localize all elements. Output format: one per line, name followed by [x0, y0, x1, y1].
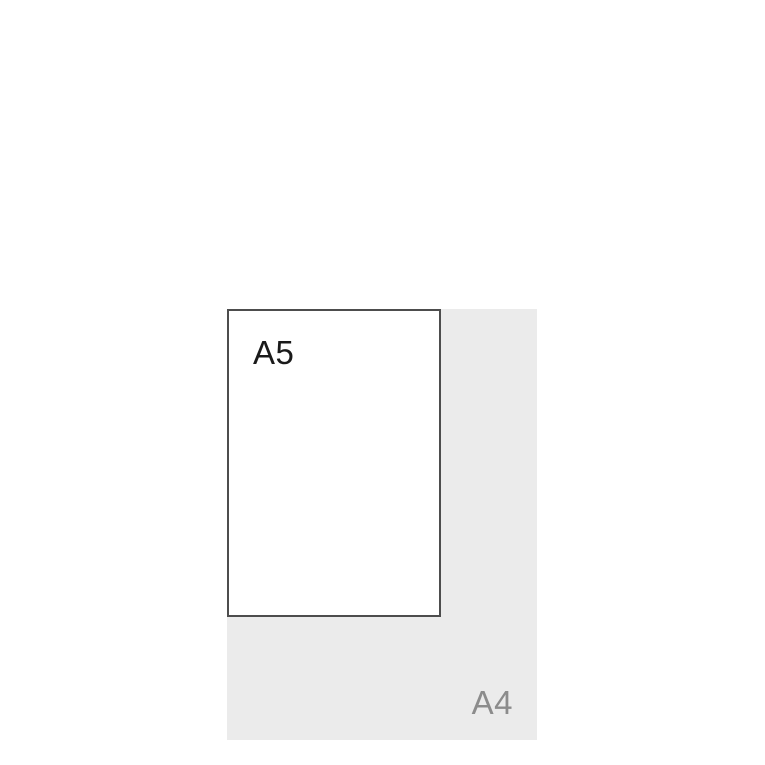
a4-label: A4: [472, 686, 513, 719]
a5-sheet: A5: [227, 309, 441, 617]
paper-size-diagram: A4 A5: [0, 0, 765, 765]
a5-label: A5: [253, 336, 294, 369]
